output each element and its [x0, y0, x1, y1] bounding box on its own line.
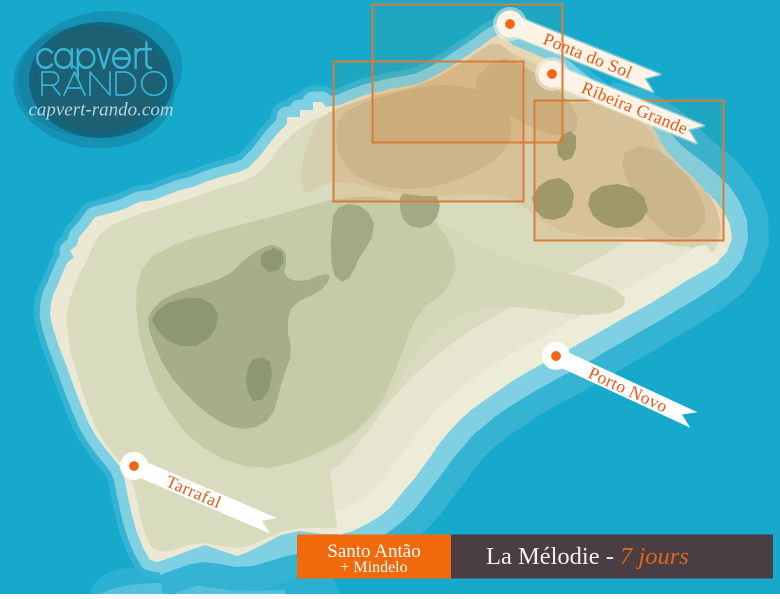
svg-text:+ Mindelo: + Mindelo [340, 559, 407, 576]
svg-text:La Mélodie - 7 jours: La Mélodie - 7 jours [486, 543, 689, 570]
svg-text:capvert-rando.com: capvert-rando.com [28, 100, 173, 121]
